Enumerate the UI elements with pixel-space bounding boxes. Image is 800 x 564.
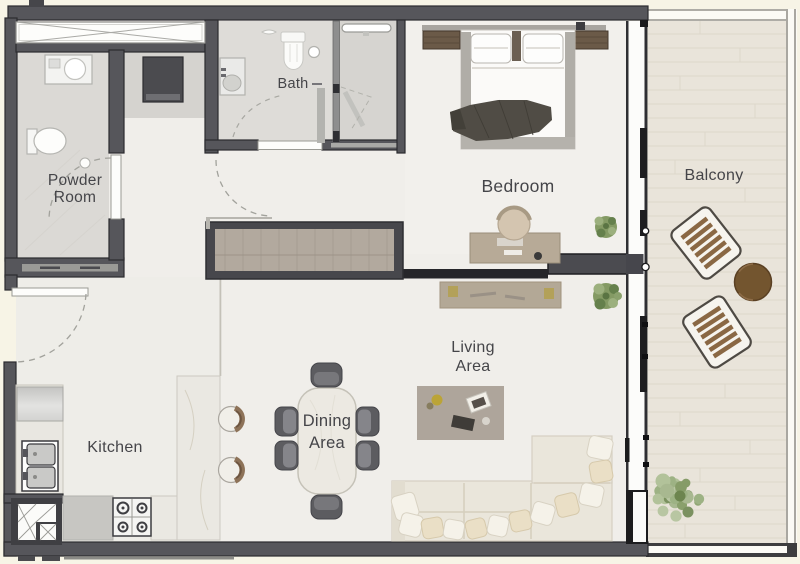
svg-text:Powder: Powder: [48, 172, 102, 189]
svg-text:Bath: Bath: [277, 76, 308, 92]
svg-text:Area: Area: [456, 358, 491, 375]
svg-text:Dining: Dining: [303, 412, 352, 430]
svg-text:Area: Area: [309, 434, 346, 452]
svg-text:Room: Room: [54, 189, 97, 206]
svg-text:Living: Living: [451, 339, 495, 356]
svg-text:Kitchen: Kitchen: [87, 439, 142, 456]
svg-text:Bedroom: Bedroom: [481, 176, 554, 196]
svg-text:Balcony: Balcony: [684, 167, 743, 184]
